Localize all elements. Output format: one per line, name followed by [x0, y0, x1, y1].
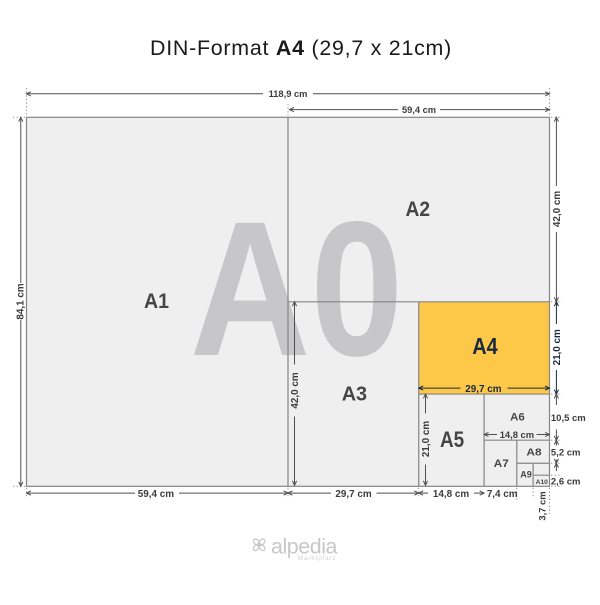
- svg-text:5,2 cm: 5,2 cm: [551, 447, 581, 458]
- svg-text:29,7 cm: 29,7 cm: [335, 489, 371, 500]
- svg-text:29,7 cm: 29,7 cm: [465, 384, 501, 395]
- svg-text:59,4 cm: 59,4 cm: [402, 105, 436, 115]
- svg-text:A0: A0: [190, 182, 404, 396]
- svg-text:2,6 cm: 2,6 cm: [551, 476, 581, 487]
- svg-text:84,1 cm: 84,1 cm: [16, 283, 27, 319]
- svg-text:A3: A3: [342, 383, 367, 405]
- svg-text:A9: A9: [520, 470, 532, 480]
- svg-text:59,4 cm: 59,4 cm: [138, 489, 174, 500]
- svg-text:14,8 cm: 14,8 cm: [500, 429, 534, 440]
- svg-text:A8: A8: [526, 447, 542, 458]
- svg-text:A4: A4: [472, 333, 498, 359]
- svg-text:A7: A7: [494, 458, 509, 470]
- svg-text:118,9 cm: 118,9 cm: [269, 89, 308, 99]
- svg-text:3,7 cm: 3,7 cm: [536, 491, 547, 520]
- svg-text:10,5 cm: 10,5 cm: [551, 413, 586, 424]
- svg-text:A10: A10: [536, 479, 549, 486]
- svg-text:Marktplatz: Marktplatz: [298, 555, 337, 562]
- svg-text:A2: A2: [406, 198, 431, 221]
- svg-text:7,4 cm: 7,4 cm: [487, 489, 518, 500]
- svg-text:A5: A5: [440, 427, 464, 452]
- svg-text:21,0 cm: 21,0 cm: [552, 329, 563, 365]
- svg-text:42,0 cm: 42,0 cm: [290, 372, 301, 408]
- svg-text:21,0 cm: 21,0 cm: [421, 421, 432, 457]
- svg-text:A1: A1: [144, 289, 169, 313]
- svg-text:42,0 cm: 42,0 cm: [552, 191, 563, 227]
- svg-text:DIN-Format A4 (29,7 x 21cm): DIN-Format A4 (29,7 x 21cm): [150, 36, 452, 60]
- svg-text:A6: A6: [510, 412, 525, 424]
- svg-text:14,8 cm: 14,8 cm: [433, 489, 469, 500]
